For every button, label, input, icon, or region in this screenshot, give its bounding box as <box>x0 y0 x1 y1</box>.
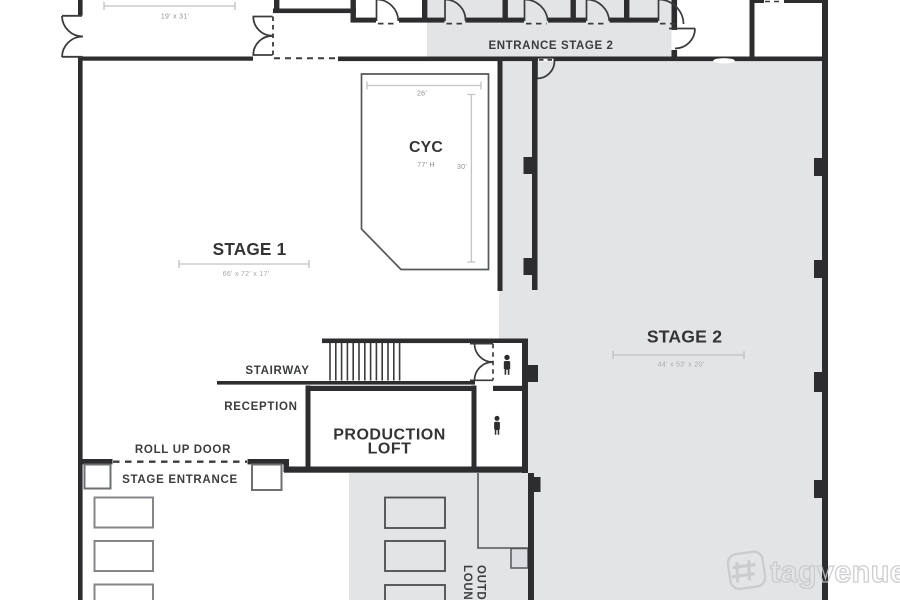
svg-text:ENTRANCE STAGE 2: ENTRANCE STAGE 2 <box>488 40 613 52</box>
svg-text:77' H: 77' H <box>417 162 435 169</box>
svg-text:STAIRWAY: STAIRWAY <box>245 365 309 377</box>
svg-text:LOFT: LOFT <box>368 441 412 458</box>
svg-text:STAGE 2: STAGE 2 <box>647 327 722 347</box>
svg-text:RECEPTION: RECEPTION <box>224 401 297 413</box>
svg-text:30': 30' <box>457 164 467 171</box>
svg-text:66' x 72' x 17': 66' x 72' x 17' <box>223 271 270 278</box>
svg-text:ROLL UP DOOR: ROLL UP DOOR <box>135 444 231 456</box>
svg-text:tagvenue: tagvenue <box>770 555 900 589</box>
svg-text:CYC: CYC <box>409 139 443 156</box>
svg-text:OUTDOORLOUNGE: OUTDOORLOUNGE <box>461 565 487 600</box>
svg-text:44' x 53' x 20': 44' x 53' x 20' <box>658 362 705 369</box>
svg-text:26': 26' <box>417 91 427 98</box>
svg-text:STAGE ENTRANCE: STAGE ENTRANCE <box>122 474 238 486</box>
svg-text:19' x 31': 19' x 31' <box>161 14 189 21</box>
svg-text:STAGE 1: STAGE 1 <box>213 239 287 259</box>
